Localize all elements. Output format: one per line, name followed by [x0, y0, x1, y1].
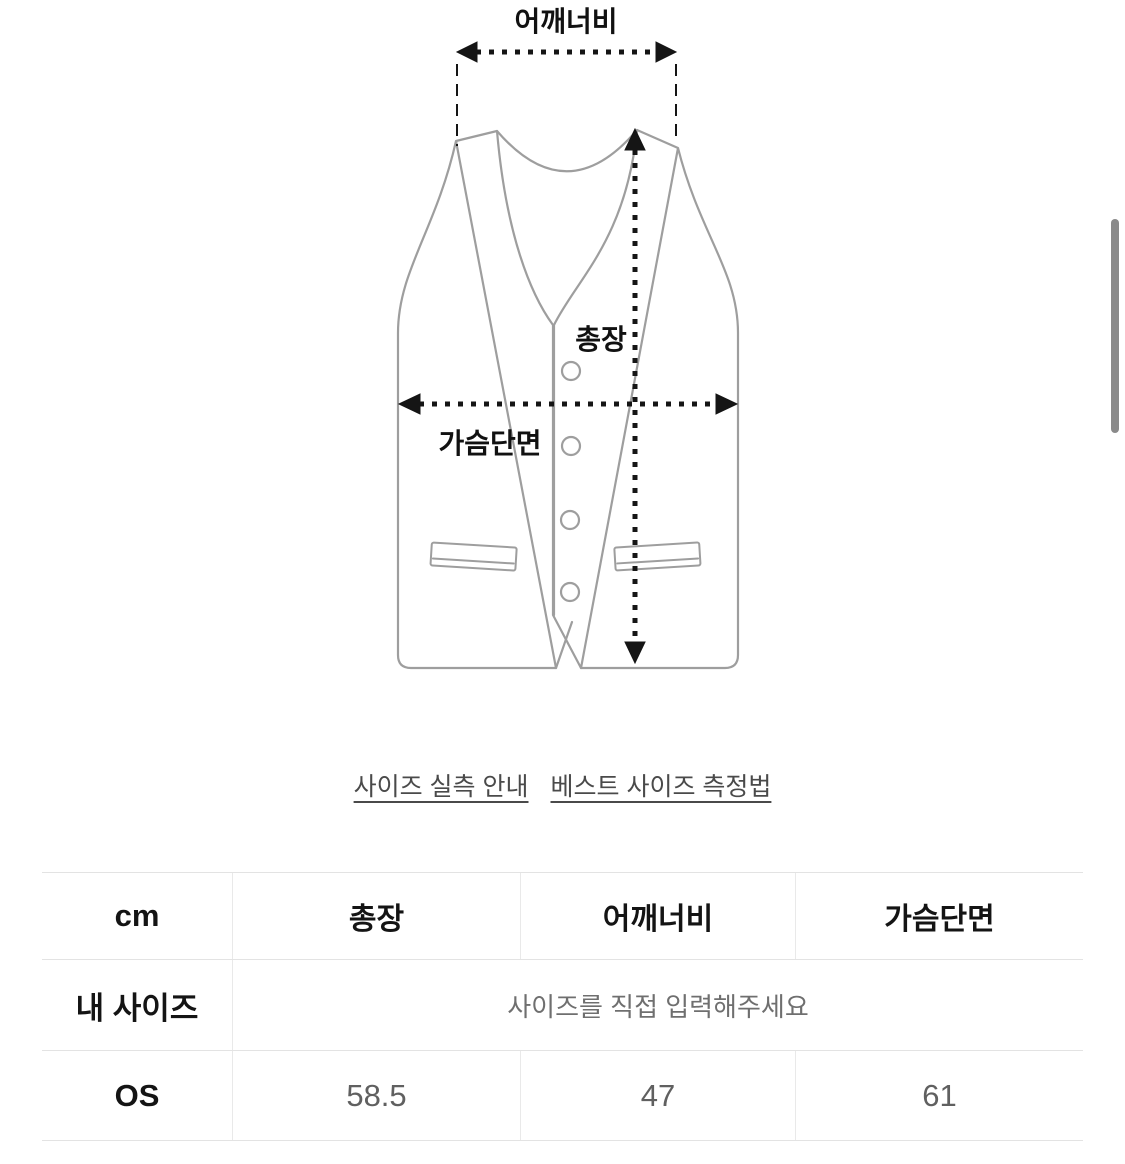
- unit-header-cell: cm: [42, 873, 232, 959]
- size-table: cm 총장 어깨너비 가슴단면 내 사이즈 사이즈를 직접 입력해주세요 OS …: [42, 872, 1083, 1141]
- vest-button-1: [562, 362, 580, 380]
- size-row-label: OS: [42, 1051, 232, 1140]
- vest-button-2: [562, 437, 580, 455]
- size-guide-link[interactable]: 사이즈 실측 안내: [354, 767, 529, 803]
- vest-left-pocket: [430, 542, 516, 570]
- os-chest-width-value: 61: [795, 1051, 1083, 1140]
- shoulder-width-label: 어깨너비: [514, 6, 617, 37]
- vest-right-pocket: [614, 542, 700, 570]
- vest-size-diagram: 어깨너비 총장 가슴단면: [0, 0, 1125, 740]
- chest-width-arrow: [399, 394, 737, 414]
- shoulder-width-arrow: [457, 42, 676, 146]
- total-length-arrow: [625, 129, 645, 663]
- total-length-label: 총장: [575, 324, 627, 355]
- scrollbar-thumb[interactable]: [1111, 219, 1119, 433]
- os-total-length-value: 58.5: [232, 1051, 520, 1140]
- vest-button-3: [561, 511, 579, 529]
- vest-measure-link[interactable]: 베스트 사이즈 측정법: [551, 767, 772, 803]
- chest-width-label: 가슴단면: [438, 428, 541, 459]
- size-guide-links: 사이즈 실측 안내 베스트 사이즈 측정법: [0, 763, 1125, 807]
- size-table-header-row: cm 총장 어깨너비 가슴단면: [42, 873, 1083, 960]
- header-shoulder-width: 어깨너비: [520, 873, 795, 959]
- vest-diagram-svg: 어깨너비 총장 가슴단면: [0, 0, 1125, 740]
- my-size-row: 내 사이즈 사이즈를 직접 입력해주세요: [42, 960, 1083, 1051]
- vest-right-panel: [554, 130, 738, 668]
- my-size-label: 내 사이즈: [42, 960, 232, 1050]
- header-total-length: 총장: [232, 873, 520, 959]
- header-chest-width: 가슴단면: [795, 873, 1083, 959]
- os-shoulder-width-value: 47: [520, 1051, 795, 1140]
- my-size-input-prompt[interactable]: 사이즈를 직접 입력해주세요: [232, 960, 1083, 1050]
- size-row-os: OS 58.5 47 61: [42, 1051, 1083, 1141]
- vest-button-4: [561, 583, 579, 601]
- vest-back-neckline: [497, 130, 637, 171]
